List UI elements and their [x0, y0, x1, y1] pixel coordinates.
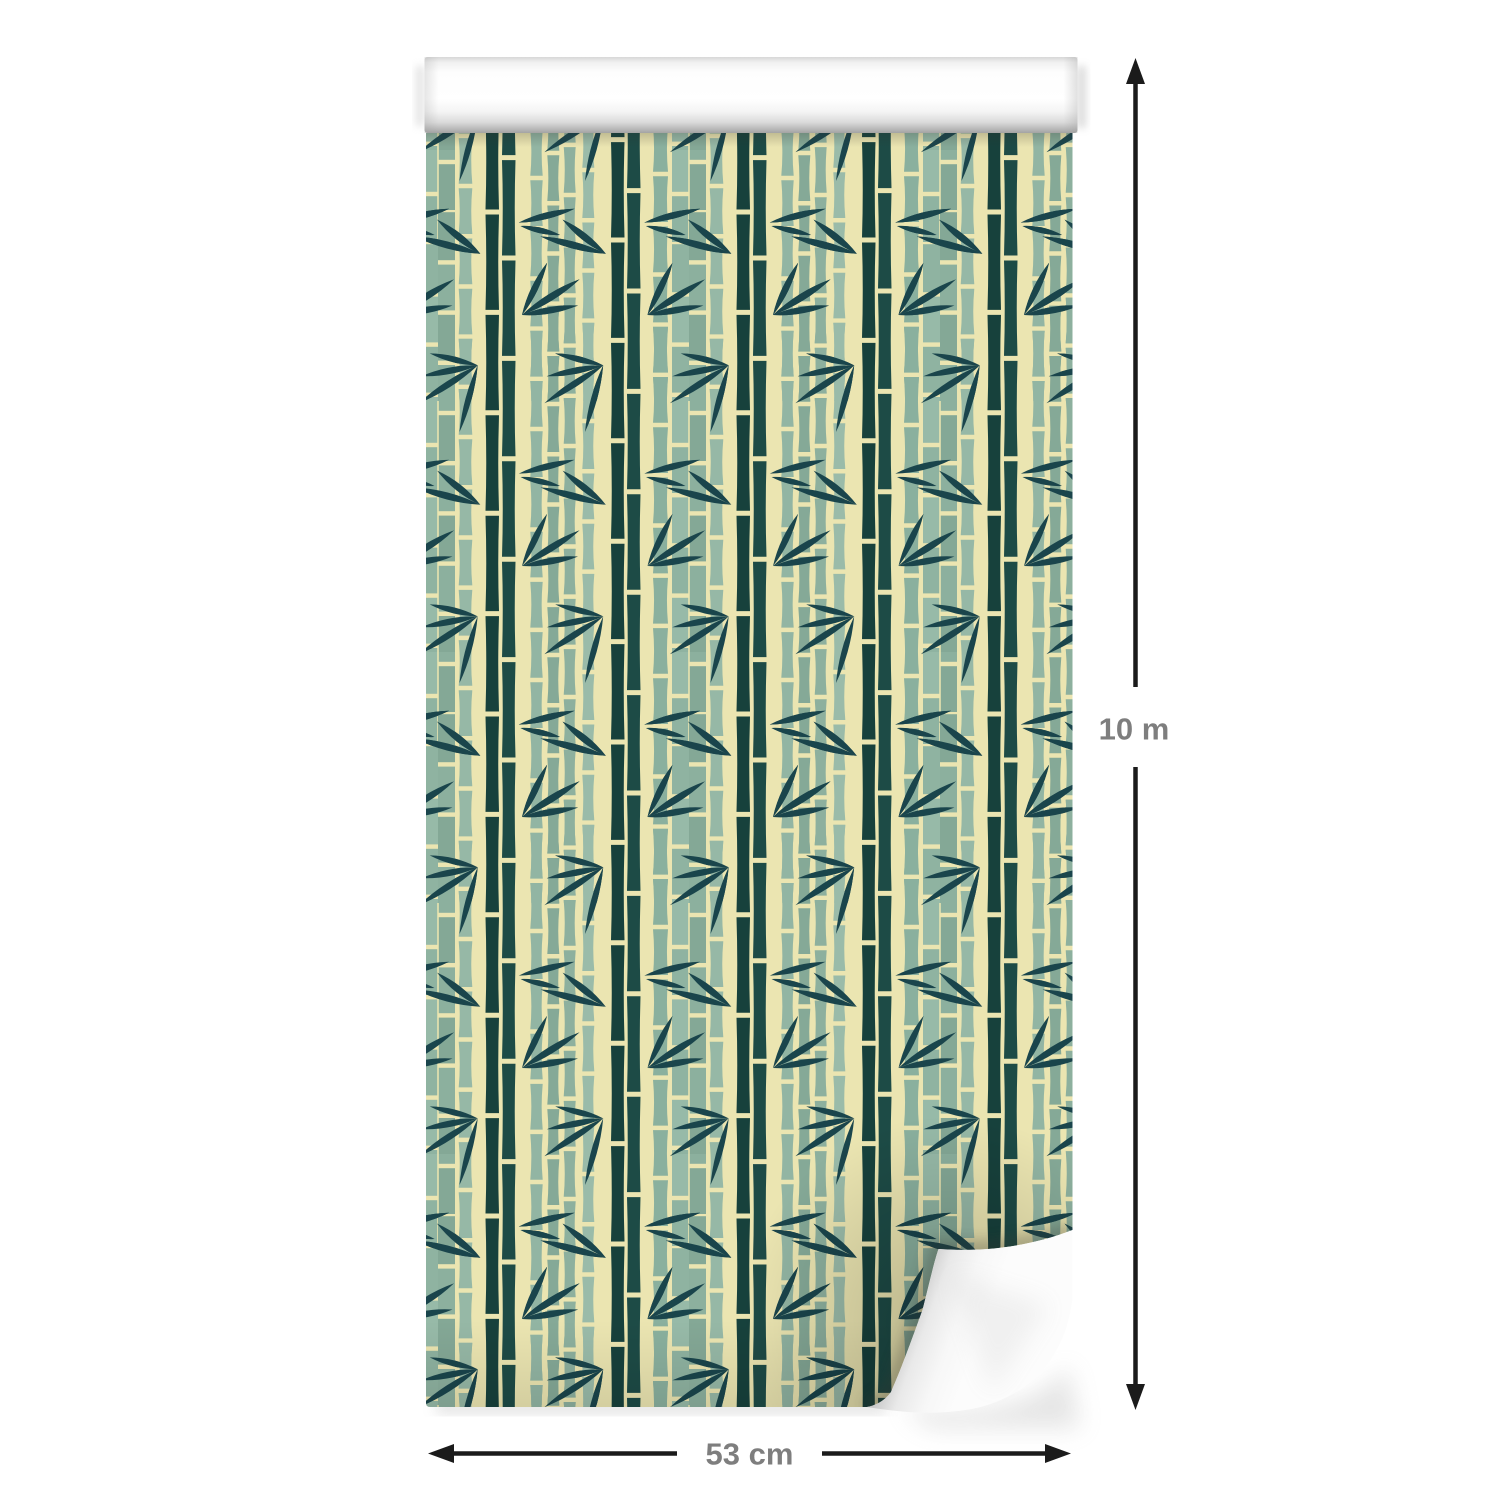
svg-text:53 cm: 53 cm	[706, 1437, 794, 1472]
svg-text:10 m: 10 m	[1099, 712, 1170, 747]
